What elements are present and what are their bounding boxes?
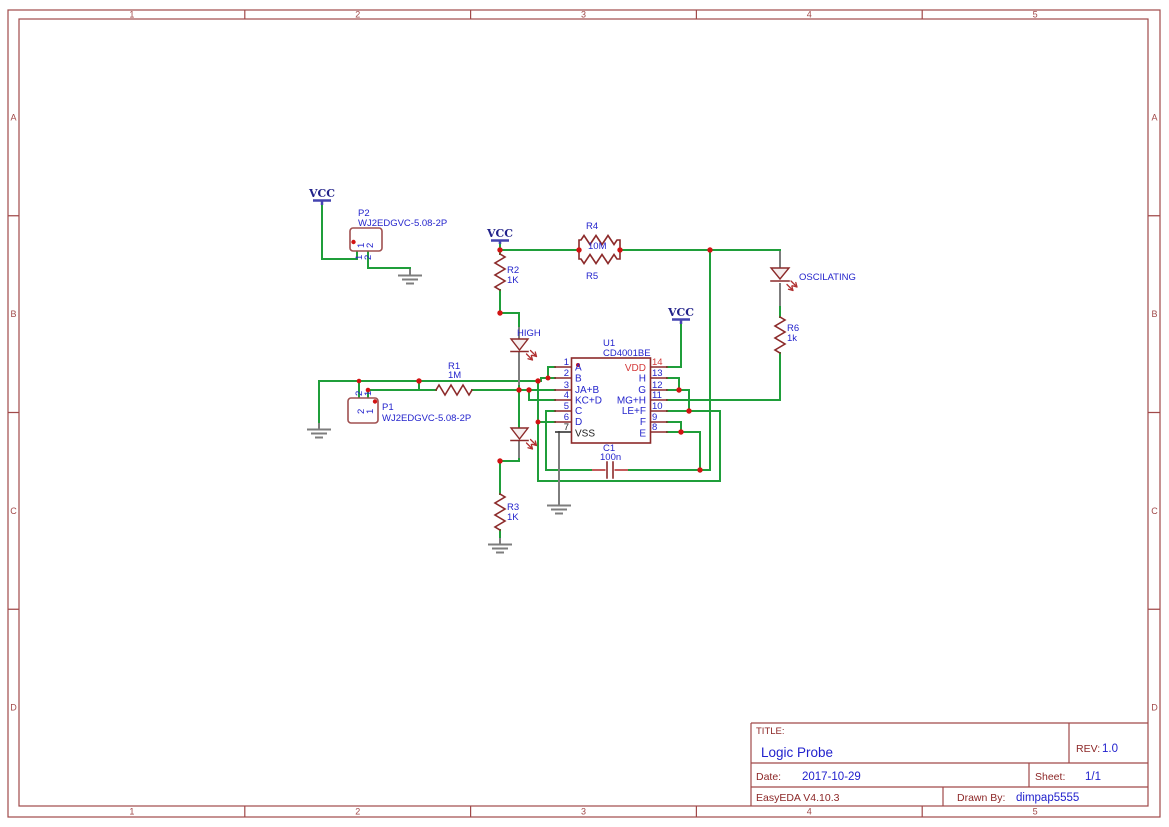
pin-number: 2: [564, 368, 569, 379]
drawn-by-label: Drawn By:: [957, 792, 1005, 804]
ruler-col-label: 4: [807, 807, 812, 817]
ruler-col-label: 5: [1033, 10, 1038, 20]
pin-name: KC+D: [575, 396, 602, 407]
resistor-zigzag: [495, 494, 505, 530]
led-emission-arrows: [787, 281, 797, 291]
junction-dot: [357, 379, 362, 384]
ruler-col-label: 4: [807, 10, 812, 20]
led-low[interactable]: [511, 428, 537, 449]
wire-segment[interactable]: [500, 290, 519, 328]
ruler-col-label: 5: [1033, 807, 1038, 817]
led-triangle: [511, 428, 528, 439]
pin-name: LE+F: [622, 406, 646, 417]
ruler-row-label: C: [1151, 506, 1158, 516]
resistor-value: 1K: [507, 275, 519, 286]
ruler-col-label: 3: [581, 10, 586, 20]
junction-dot: [416, 378, 421, 383]
sheet-label: Sheet:: [1035, 771, 1065, 783]
vcc-symbol-p2[interactable]: VCC: [308, 187, 335, 205]
capacitor-value: 100n: [600, 452, 621, 463]
pin-number: 4: [564, 390, 569, 401]
ground-symbol-r3[interactable]: [489, 539, 511, 553]
rev-value[interactable]: 1.0: [1102, 743, 1118, 755]
wires[interactable]: [319, 205, 780, 539]
capacitor-c1[interactable]: C1 100n: [592, 443, 628, 478]
title-block: TITLE: Logic Probe REV: 1.0 Date: 2017-1…: [751, 723, 1148, 806]
junction-dot: [516, 387, 521, 392]
vcc-bar-icon: [491, 241, 509, 245]
date-value[interactable]: 2017-10-29: [802, 771, 861, 783]
junction-dot: [678, 429, 683, 434]
wire-segment[interactable]: [368, 251, 410, 270]
connector-pin-label: 1: [365, 409, 376, 414]
resistor-zigzag: [579, 250, 620, 264]
ground-symbol-p2[interactable]: [399, 270, 421, 284]
resistor-r6[interactable]: R6 1k: [775, 317, 799, 353]
rev-label: REV:: [1076, 743, 1100, 755]
connector-value: WJ2EDGVC-5.08-2P: [382, 413, 471, 424]
ruler-row-label: D: [1151, 703, 1158, 713]
pin-name: B: [575, 374, 582, 385]
ruler-col-label: 2: [355, 807, 360, 817]
drawn-by-value[interactable]: dimpap5555: [1016, 792, 1079, 804]
led-triangle: [511, 339, 528, 350]
vcc-net-label: VCC: [667, 306, 694, 319]
sheet-title[interactable]: Logic Probe: [761, 745, 833, 760]
ground-glyph: [308, 424, 330, 438]
pin1-marker-dot: [373, 399, 377, 403]
ruler-row-label: A: [10, 113, 16, 123]
pin-number: 13: [652, 368, 663, 379]
resistor-r2[interactable]: R2 1K: [495, 254, 519, 290]
led-label: HIGH: [517, 328, 541, 339]
vcc-bar-icon: [672, 320, 690, 325]
ruler-col-label: 1: [129, 807, 134, 817]
title-label: TITLE:: [756, 726, 785, 737]
ruler-row-label: A: [1151, 113, 1157, 123]
pin-name: D: [575, 417, 582, 428]
ic-u1[interactable]: U1 CD4001BE 1 2 3 4 5 6 7 A B JA+B KC+D …: [555, 338, 667, 443]
pin-name: H: [639, 374, 646, 385]
pin-name: G: [638, 385, 646, 396]
connector-pin-label: 2: [365, 243, 376, 248]
sheet-value[interactable]: 1/1: [1085, 771, 1101, 783]
wire-segment[interactable]: [667, 324, 681, 367]
ruler-row-label: C: [10, 506, 17, 516]
ruler-row-label: B: [1151, 309, 1157, 319]
pin-name: VDD: [625, 363, 646, 374]
connector-pin-number: 2: [363, 255, 374, 260]
date-label: Date:: [756, 771, 781, 783]
resistor-zigzag: [495, 254, 505, 290]
junction-dot: [576, 247, 581, 252]
vcc-net-label: VCC: [308, 187, 335, 200]
wire-segment[interactable]: [667, 378, 689, 411]
wire-segment[interactable]: [500, 457, 519, 494]
vcc-bar-icon: [313, 201, 331, 206]
pin-name: E: [639, 429, 646, 440]
led-high[interactable]: HIGH: [511, 328, 541, 360]
junction-dot: [497, 310, 502, 315]
junction-dot: [676, 387, 681, 392]
resistor-r3[interactable]: R3 1K: [495, 494, 519, 530]
junction-dot: [497, 458, 502, 463]
capacitor-plates: [607, 462, 613, 478]
ruler-row-label: D: [10, 703, 17, 713]
resistor-r1[interactable]: R1 1M: [436, 361, 472, 395]
resistor-ref: R5: [586, 271, 598, 282]
ruler-col-label: 2: [355, 10, 360, 20]
junction-dot: [497, 247, 502, 252]
pin-number: 7: [564, 422, 569, 433]
resistor-value: 1k: [787, 333, 797, 344]
junction-dot: [546, 376, 551, 381]
pin-number: 8: [652, 422, 657, 433]
wire-segment[interactable]: [620, 250, 780, 252]
schematic-page: 1 2 3 4 5 1 2 3 4 5 A B C D A B C D TITL…: [0, 0, 1169, 827]
connector-ref: P1: [382, 402, 394, 413]
connector-value: WJ2EDGVC-5.08-2P: [358, 218, 447, 229]
ruler-col-label: 3: [581, 807, 586, 817]
resistor-value: 10M: [588, 241, 607, 252]
ruler-col-label: 1: [129, 10, 134, 20]
junction-dot: [536, 420, 541, 425]
vcc-symbol-r2[interactable]: VCC: [486, 227, 513, 244]
resistor-value: 1K: [507, 512, 519, 523]
junction-dot: [366, 388, 371, 393]
resistor-zigzag: [436, 385, 472, 395]
pin-number: 11: [652, 390, 662, 401]
ground-symbol-p1[interactable]: [308, 424, 330, 438]
ruler-row-label: B: [10, 309, 16, 319]
pin-name: C: [575, 406, 582, 417]
led-triangle: [771, 268, 789, 279]
pin-number: 14: [652, 357, 663, 368]
pin-name: MG+H: [617, 396, 646, 407]
pin-name: F: [640, 417, 646, 428]
resistor-zigzag: [775, 317, 785, 353]
resistor-r4-r5-parallel[interactable]: R4 10M R5: [579, 221, 620, 282]
ground-symbol-vss[interactable]: [548, 500, 570, 514]
ground-glyph: [548, 500, 570, 514]
connector-p1[interactable]: 2 1 2 1 P1 WJ2EDGVC-5.08-2P: [348, 391, 471, 424]
wire-segment[interactable]: [667, 422, 700, 470]
junction-dot: [686, 408, 691, 413]
schematic-canvas[interactable]: 1 2 3 4 5 1 2 3 4 5 A B C D A B C D TITL…: [0, 0, 1169, 827]
vcc-symbol-u1[interactable]: VCC: [667, 306, 694, 324]
pin-number: 5: [564, 401, 569, 412]
pin-number: 1: [564, 357, 569, 368]
pin-number: 10: [652, 401, 663, 412]
ground-glyph: [489, 539, 511, 553]
pin-name: JA+B: [575, 385, 600, 396]
junction-dot: [697, 467, 702, 472]
junction-dot: [535, 378, 540, 383]
ic-value: CD4001BE: [603, 348, 651, 359]
connector-p2[interactable]: 1 2 1 2 P2 WJ2EDGVC-5.08-2P: [350, 208, 447, 260]
led-label: OSCILATING: [799, 272, 856, 283]
junction-dot: [707, 247, 712, 252]
resistor-value: 1M: [448, 370, 461, 381]
led-oscillating[interactable]: OSCILATING: [771, 268, 856, 291]
pin-name: A: [575, 363, 582, 374]
junction-dot: [617, 247, 622, 252]
resistor-ref: R4: [586, 221, 598, 232]
wire-segment[interactable]: [529, 390, 555, 400]
pin-name: VSS: [575, 429, 595, 440]
software-version: EasyEDA V4.10.3: [756, 792, 840, 804]
vcc-net-label: VCC: [486, 227, 513, 240]
junction-dot: [526, 387, 531, 392]
ground-glyph: [399, 270, 421, 284]
